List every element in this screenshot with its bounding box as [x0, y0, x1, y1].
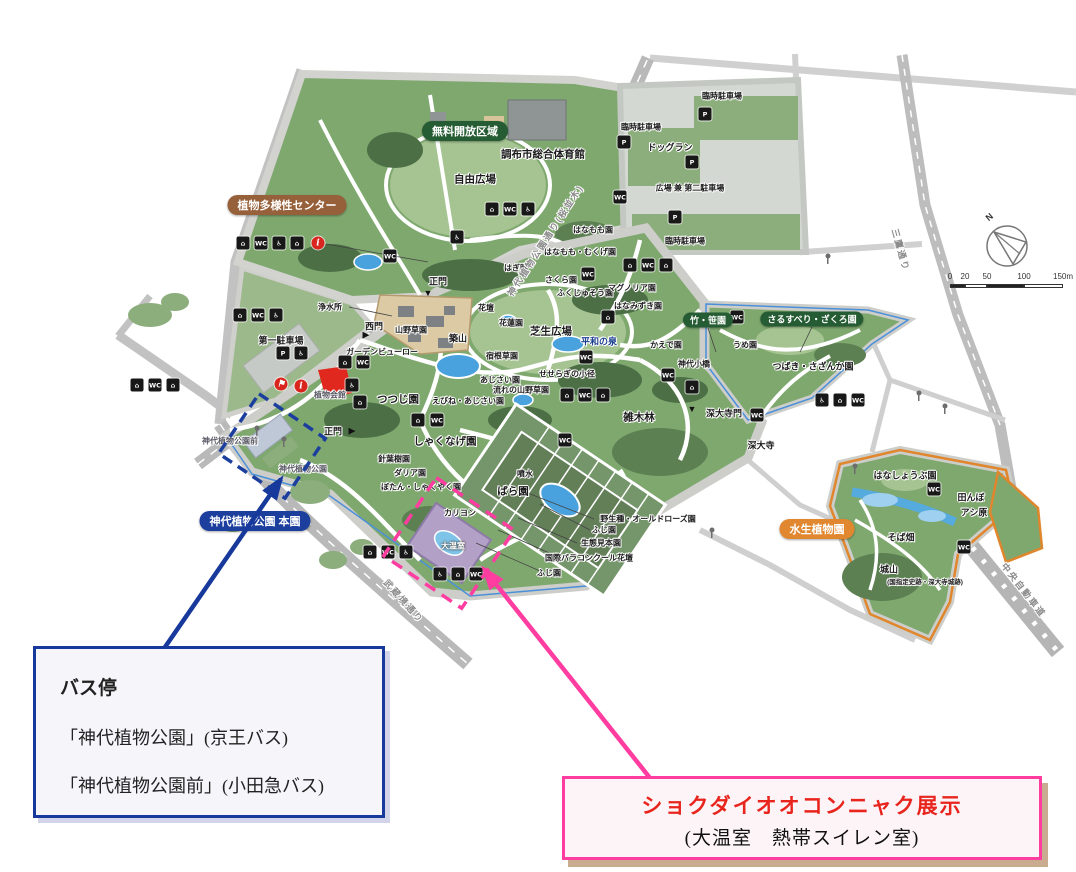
bus-callout-line: 「神代植物公園」(京王バス) [60, 724, 358, 750]
bus-callout-line: 「神代植物公園前」(小田急バス) [60, 772, 358, 798]
scale-tick: 20 [961, 272, 970, 281]
park-map-figure: 臨時駐車場臨時駐車場ドッグラン広場 兼 第二駐車場臨時駐車場調布市総合体育館自由… [0, 0, 1076, 872]
konjac-callout-title: ショクダイオオコンニャク展示 [565, 790, 1039, 820]
scale-tick: 50 [983, 272, 992, 281]
konjac-arrow [484, 569, 650, 778]
konjac-callout-subtitle: (大温室 熱帯スイレン室) [565, 823, 1039, 850]
bus-stop-arrow [163, 479, 281, 650]
konjac-exhibit-callout: ショクダイオオコンニャク展示 (大温室 熱帯スイレン室) [562, 776, 1042, 860]
scale-tick: 150m [1053, 272, 1073, 281]
scale-tick: 0 [948, 272, 952, 281]
scale-bar: 02050100150m [948, 272, 1072, 294]
compass-rose: N [962, 206, 1052, 272]
bus-stop-callout: バス停 「神代植物公園」(京王バス) 「神代植物公園前」(小田急バス) [33, 646, 385, 818]
bus-callout-title: バス停 [60, 673, 358, 700]
bus-stop-highlight-box [219, 394, 326, 498]
scale-tick: 100 [1017, 272, 1030, 281]
greenhouse-highlight-box [384, 478, 514, 608]
